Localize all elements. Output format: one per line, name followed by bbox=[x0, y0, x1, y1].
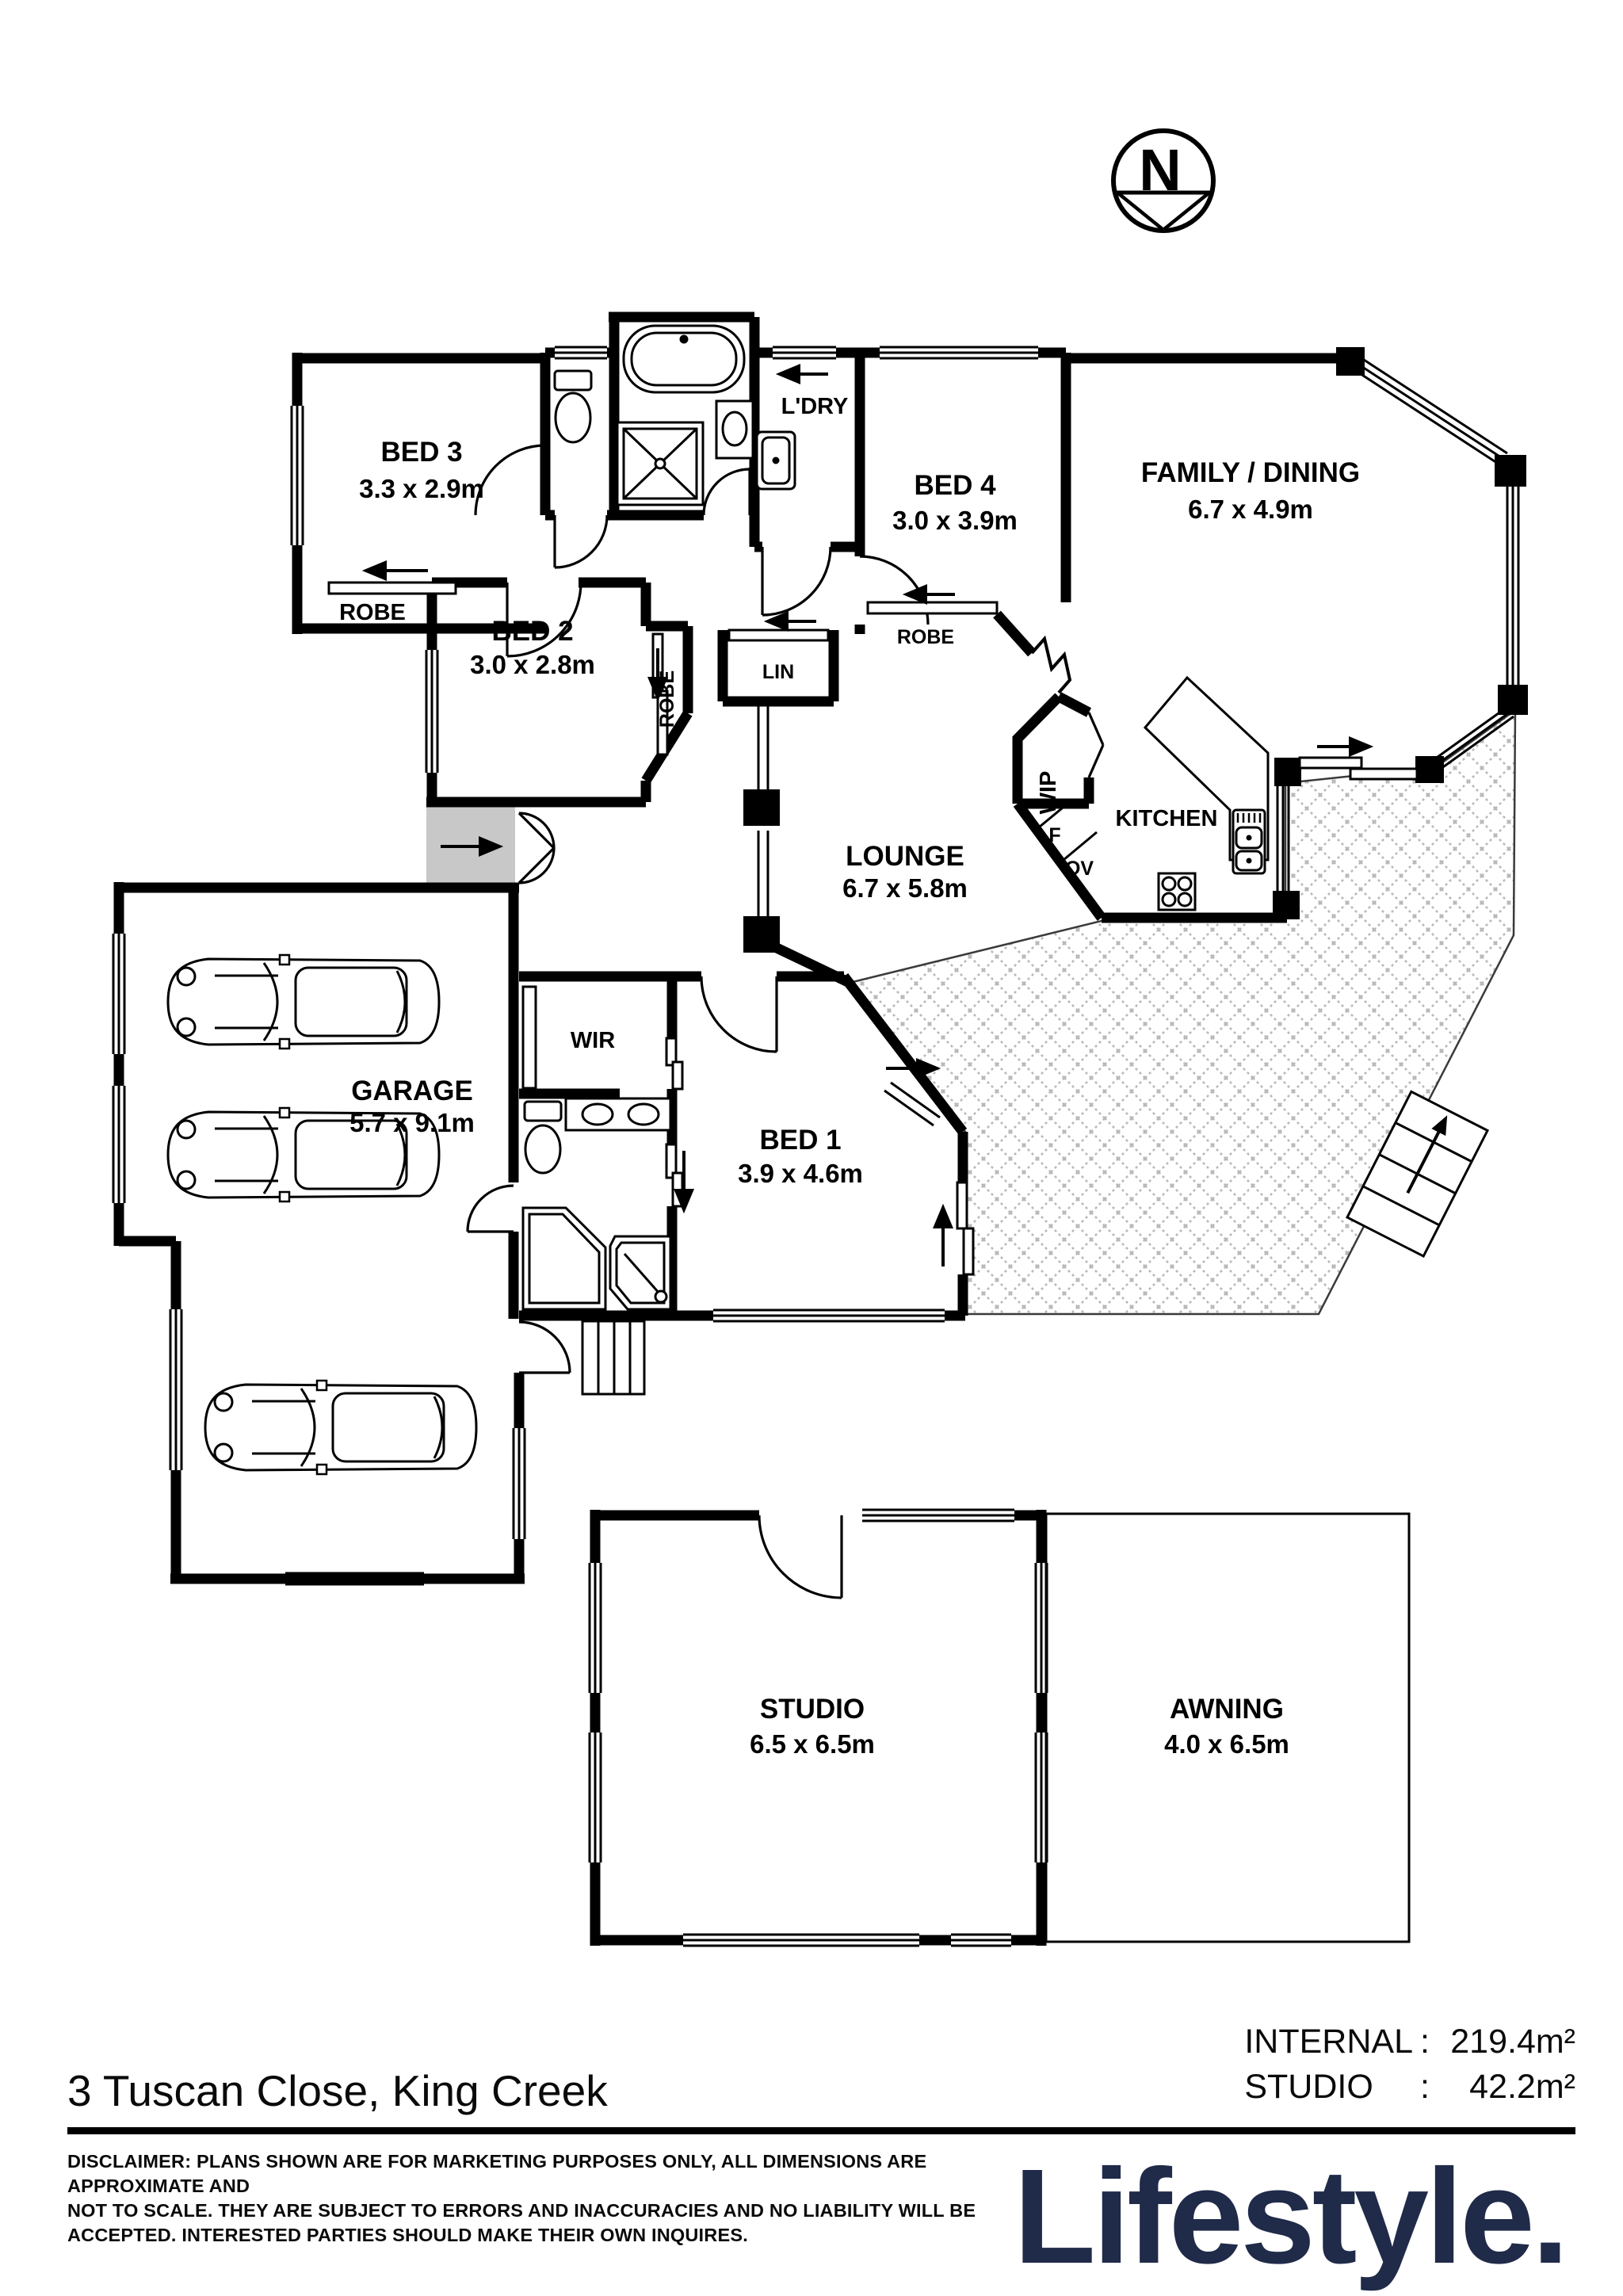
footer-divider bbox=[67, 2127, 1575, 2134]
area-label-studio: STUDIO bbox=[1244, 2068, 1373, 2107]
room-dims-studio: 6.5 x 6.5m bbox=[750, 1729, 875, 1759]
arrow-family-slider bbox=[1317, 739, 1369, 755]
arrow-ldry bbox=[780, 366, 828, 382]
corner-shower-icon bbox=[610, 1236, 670, 1309]
compass-north-label: N bbox=[1139, 137, 1181, 203]
robe-label-bed3: ROBE bbox=[339, 600, 406, 625]
room-label-family: FAMILY / DINING bbox=[1141, 457, 1360, 488]
fridge-label: F bbox=[1048, 824, 1060, 846]
robe-label-bed2: ROBE bbox=[656, 670, 678, 728]
room-label-garage: GARAGE bbox=[351, 1075, 473, 1106]
area-value-internal: 219.4m² bbox=[1450, 2023, 1575, 2061]
room-label-lounge: LOUNGE bbox=[846, 841, 964, 872]
oven-label: OV bbox=[1065, 858, 1094, 880]
room-dims-family: 6.7 x 4.9m bbox=[1188, 495, 1313, 524]
room-label-awning: AWNING bbox=[1170, 1694, 1284, 1725]
room-label-bed2: BED 2 bbox=[491, 616, 573, 647]
corner-bath-icon bbox=[523, 1208, 605, 1309]
arrow-robe-bed4 bbox=[907, 586, 955, 602]
double-vanity-icon bbox=[566, 1098, 670, 1130]
kitchen-label: KITCHEN bbox=[1116, 806, 1218, 831]
compass-icon: N bbox=[1113, 131, 1213, 231]
awning-outline bbox=[1046, 1514, 1409, 1942]
robe-label-bed4: ROBE bbox=[897, 626, 954, 648]
ensuite-toilet-icon bbox=[525, 1102, 561, 1173]
floor-plan-drawing: N BED 3 3.3 x 2.9m ROBE L'DRY BED 4 3.0 … bbox=[0, 0, 1623, 2296]
wir-shelf bbox=[523, 987, 536, 1088]
property-address: 3 Tuscan Close, King Creek bbox=[67, 2065, 608, 2116]
shower-icon bbox=[617, 422, 703, 505]
room-dims-bed1: 3.9 x 4.6m bbox=[738, 1159, 863, 1188]
arrow-bed1-side bbox=[935, 1208, 951, 1266]
arrow-lin bbox=[768, 613, 816, 629]
wip-label: WIP bbox=[1036, 771, 1061, 815]
room-dims-garage: 5.7 x 9.1m bbox=[349, 1108, 475, 1137]
ldry-label: L'DRY bbox=[781, 394, 849, 419]
toilet-icon bbox=[555, 371, 591, 442]
area-value-studio: 42.2m² bbox=[1469, 2068, 1575, 2107]
room-dims-lounge: 6.7 x 5.8m bbox=[842, 873, 968, 903]
arrow-robe-bed3 bbox=[366, 563, 428, 579]
area-summary: INTERNAL : 219.4m² STUDIO : 42.2m² bbox=[1244, 2023, 1575, 2107]
area-label-internal: INTERNAL bbox=[1244, 2023, 1413, 2061]
wir-label: WIR bbox=[571, 1028, 615, 1053]
room-dims-bed3: 3.3 x 2.9m bbox=[359, 474, 484, 503]
car-icon bbox=[168, 955, 439, 1049]
wall-break-zigzag bbox=[1032, 639, 1070, 693]
agency-logo: Lifestyle. bbox=[1014, 2149, 1566, 2284]
exterior-steps-icon bbox=[582, 1321, 644, 1394]
bathtub-icon bbox=[624, 326, 744, 392]
cooktop-icon bbox=[1159, 873, 1195, 910]
room-label-studio: STUDIO bbox=[760, 1694, 865, 1725]
disclaimer-text: DISCLAIMER: PLANS SHOWN ARE FOR MARKETIN… bbox=[67, 2149, 1002, 2248]
room-dims-bed2: 3.0 x 2.8m bbox=[470, 650, 595, 679]
room-label-bed1: BED 1 bbox=[759, 1125, 841, 1156]
room-dims-bed4: 3.0 x 3.9m bbox=[892, 506, 1018, 535]
room-label-bed3: BED 3 bbox=[380, 437, 462, 468]
floorplan-sheet: N BED 3 3.3 x 2.9m ROBE L'DRY BED 4 3.0 … bbox=[0, 0, 1623, 2296]
room-label-bed4: BED 4 bbox=[914, 470, 996, 501]
area-colon: : bbox=[1420, 2068, 1430, 2107]
area-colon: : bbox=[1420, 2023, 1430, 2061]
lin-label: LIN bbox=[762, 661, 794, 683]
laundry-tub-icon bbox=[757, 432, 795, 489]
vanity-icon bbox=[716, 401, 753, 458]
room-dims-awning: 4.0 x 6.5m bbox=[1164, 1729, 1289, 1759]
kitchen-sink-icon bbox=[1233, 810, 1265, 873]
car-icon bbox=[205, 1381, 476, 1474]
